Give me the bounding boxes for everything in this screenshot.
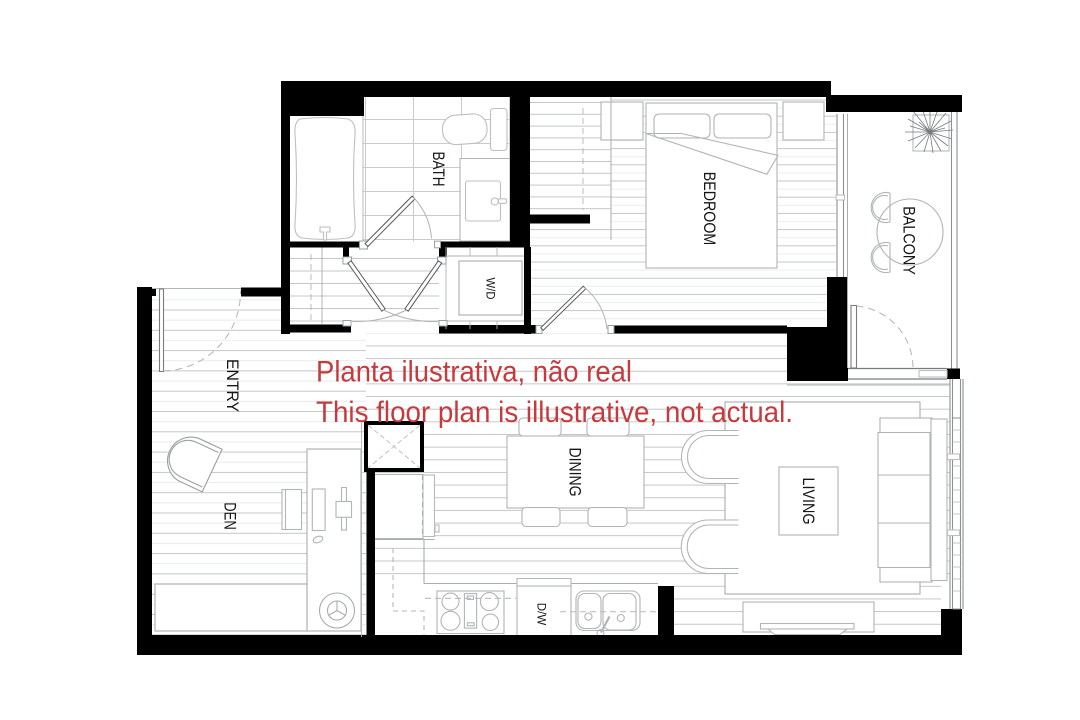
svg-text:W/D: W/D bbox=[484, 278, 496, 300]
svg-text:DINING: DINING bbox=[566, 448, 584, 497]
svg-text:D/W: D/W bbox=[535, 603, 547, 626]
svg-text:BATH: BATH bbox=[429, 152, 447, 187]
svg-text:ENTRY: ENTRY bbox=[223, 359, 241, 412]
svg-text:BEDROOM: BEDROOM bbox=[700, 172, 718, 246]
svg-text:LIVING: LIVING bbox=[799, 478, 817, 525]
svg-text:BALCONY: BALCONY bbox=[900, 206, 918, 275]
svg-text:DEN: DEN bbox=[221, 502, 239, 530]
svg-text:Planta ilustrativa, não real: Planta ilustrativa, não real bbox=[316, 356, 632, 389]
svg-text:This floor plan is illustrativ: This floor plan is illustrative, not act… bbox=[316, 396, 793, 429]
